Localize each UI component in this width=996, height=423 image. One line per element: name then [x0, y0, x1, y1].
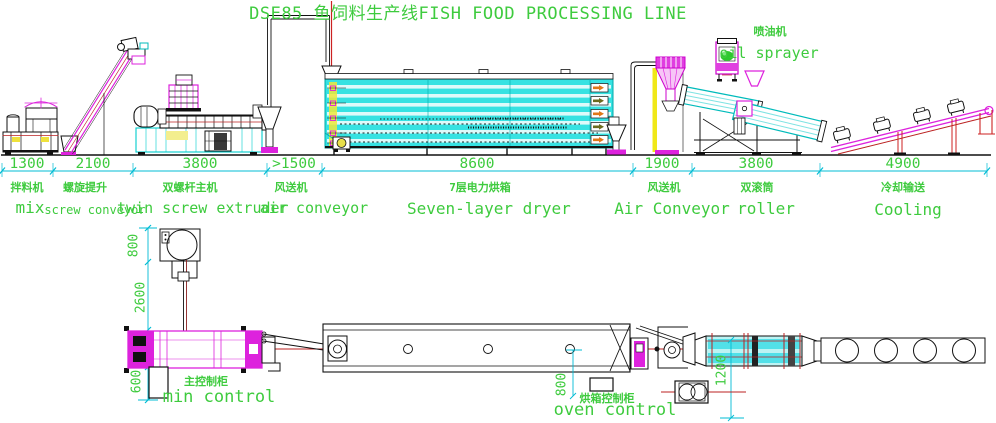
seven-layer-dryer-machine — [325, 70, 613, 156]
label-cn-screw-conveyor: 螺旋提升 — [40, 182, 130, 193]
plan-dim-roller-offset: 1200 — [716, 351, 729, 391]
dimension-dryer: 8600 — [442, 157, 512, 172]
conveyor-tray — [832, 125, 851, 143]
screw-conveyor-machine — [61, 37, 148, 155]
dimension-extruder: 3800 — [165, 157, 235, 172]
conveyor-tray — [872, 116, 891, 134]
label-cn-roller: 双滚筒 — [712, 182, 802, 193]
label-en-oven-control: oven control — [541, 402, 689, 419]
label-cn-dryer: 7层电力烘箱 — [435, 182, 525, 193]
twin-screw-extruder-machine — [134, 75, 272, 155]
dimension-cooling: 4900 — [868, 157, 938, 172]
drawing-title: DSE85 鱼饲料生产线FISH FOOD PROCESSING LINE — [238, 6, 698, 23]
air-conveyor-2 — [607, 57, 685, 155]
dimension-air-conveyor-2: 1900 — [627, 157, 697, 172]
dryer-motor — [333, 137, 350, 152]
label-en-air-conveyor-1: air conveyor — [254, 201, 374, 216]
label-cn-air-conveyor-2: 风送机 — [619, 182, 709, 193]
label-en-dryer: Seven-layer dryer — [407, 201, 567, 217]
plan-dim-feeder-to-extruder: 2600 — [135, 278, 148, 318]
conveyor-tray — [912, 106, 931, 124]
cooling-conveyor-machine — [831, 98, 995, 155]
plan-dim-feeder-width: 800 — [128, 226, 141, 266]
mixer-machine — [3, 98, 58, 155]
roller-feed-hopper — [745, 71, 764, 86]
dimension-mix: 1300 — [0, 157, 62, 172]
label-cn-extruder: 双螺杆主机 — [145, 182, 235, 193]
label-en-extruder: twin screw extruder — [117, 201, 277, 216]
label-cn-cooling: 冷却输送 — [858, 182, 948, 193]
plan-cooling-bar — [821, 338, 985, 363]
label-en-cooling: Cooling — [848, 202, 968, 218]
cad-drawing-fish-food-processing-line: DSE85 鱼饲料生产线FISH FOOD PROCESSING LINE 13… — [0, 0, 996, 423]
label-en-main-control: min control — [146, 389, 292, 406]
label-cn-main-control: 主控制柜 — [166, 376, 246, 387]
plan-dim-cabinet-offset: 600 — [131, 362, 144, 402]
label-en-oil-sprayer: oil sprayer — [714, 46, 824, 61]
conveyor-tray — [946, 98, 965, 116]
dimension-screw-conveyor: 2100 — [58, 157, 128, 172]
plan-transfer — [631, 326, 702, 369]
plan-extruder — [124, 326, 330, 373]
plan-dryer — [323, 324, 630, 372]
label-en-roller: roller — [706, 201, 826, 217]
double-roller-machine — [679, 71, 827, 155]
dimension-air-conveyor-1: >1500 — [259, 157, 329, 172]
label-cn-oil-sprayer: 喷油机 — [740, 26, 800, 37]
label-cn-air-conveyor-1: 风送机 — [246, 182, 336, 193]
yellow-support-line — [653, 68, 658, 152]
dimension-roller: 3800 — [721, 157, 791, 172]
plan-dim-oven-cabinet-offset: 800 — [556, 365, 569, 405]
